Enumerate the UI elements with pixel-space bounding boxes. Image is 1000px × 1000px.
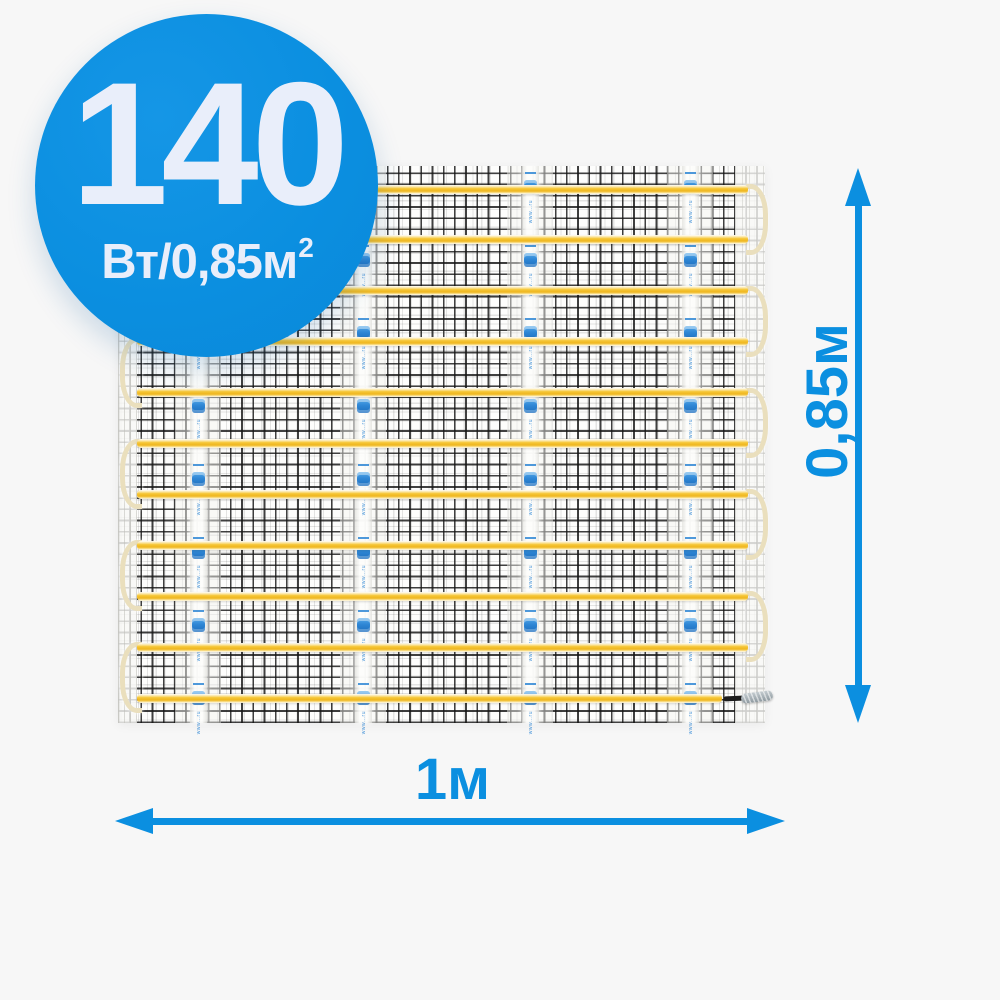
- tape-dash-mark: [358, 318, 369, 320]
- tape-dash-mark: [193, 537, 204, 539]
- tape-dash-mark: [525, 245, 536, 247]
- brand-logo-icon: [524, 399, 537, 413]
- brand-logo-icon: [524, 618, 537, 632]
- tape-url-text: www…ru: [688, 200, 694, 223]
- badge-power-unit: Вт/0,85м2: [101, 234, 312, 290]
- heating-cable-line: [137, 439, 748, 448]
- heating-cable-line: [137, 541, 748, 550]
- product-image: www…ruwww…ruwww…ruwww…ruwww…ruwww…ruwww……: [0, 0, 1000, 1000]
- brand-logo-icon: [524, 253, 537, 267]
- tape-url-text: www…ru: [528, 346, 534, 369]
- brand-logo-icon: [684, 399, 697, 413]
- tape-dash-mark: [358, 537, 369, 539]
- badge-unit-text: Вт/0,85м: [101, 235, 297, 289]
- tape-url-text: www…ru: [196, 565, 202, 588]
- arrow-shaft: [141, 818, 759, 825]
- tape-dash-mark: [685, 683, 696, 685]
- heating-cable-line: [137, 388, 748, 397]
- brand-logo-icon: [684, 618, 697, 632]
- arrow-head-right-icon: [747, 808, 785, 834]
- tape-dash-mark: [358, 464, 369, 466]
- tape-dash-mark: [193, 464, 204, 466]
- cable-u-turn-left: [120, 337, 142, 408]
- height-dimension-label: 0,85м: [799, 301, 857, 501]
- tape-url-text: www…ru: [688, 346, 694, 369]
- heating-cable-line: [137, 490, 748, 499]
- tape-url-text: www…ru: [361, 565, 367, 588]
- tape-dash-mark: [358, 683, 369, 685]
- badge-power-value: 140: [71, 62, 342, 228]
- tape-dash-mark: [525, 464, 536, 466]
- tape-dash-mark: [525, 683, 536, 685]
- tape-dash-mark: [525, 318, 536, 320]
- tape-dash-mark: [685, 318, 696, 320]
- tape-url-text: www…ru: [361, 711, 367, 734]
- tape-url-text: www…ru: [361, 346, 367, 369]
- heating-cable-line: [137, 694, 722, 703]
- tape-dash-mark: [525, 537, 536, 539]
- brand-logo-icon: [524, 472, 537, 486]
- brand-logo-icon: [357, 472, 370, 486]
- tape-url-text: www…ru: [528, 711, 534, 734]
- tape-url-text: www…ru: [528, 200, 534, 223]
- brand-logo-icon: [192, 399, 205, 413]
- brand-logo-icon: [684, 472, 697, 486]
- tape-dash-mark: [193, 683, 204, 685]
- tape-url-text: www…ru: [528, 565, 534, 588]
- tape-dash-mark: [193, 610, 204, 612]
- tape-dash-mark: [525, 610, 536, 612]
- tape-dash-mark: [685, 537, 696, 539]
- arrow-head-down-icon: [845, 685, 871, 723]
- heating-cable-line: [137, 592, 748, 601]
- tape-dash-mark: [685, 172, 696, 174]
- tape-dash-mark: [685, 610, 696, 612]
- power-badge: 140 Вт/0,85м2: [35, 14, 378, 357]
- tape-url-text: www…ru: [688, 565, 694, 588]
- brand-logo-icon: [192, 472, 205, 486]
- brand-logo-icon: [357, 618, 370, 632]
- tape-dash-mark: [685, 464, 696, 466]
- tape-dash-mark: [525, 172, 536, 174]
- tape-dash-mark: [685, 245, 696, 247]
- brand-logo-icon: [192, 618, 205, 632]
- tape-url-text: www…ru: [688, 711, 694, 734]
- brand-logo-icon: [357, 399, 370, 413]
- badge-unit-superscript: 2: [298, 232, 313, 263]
- tape-dash-mark: [358, 610, 369, 612]
- width-dimension-label: 1м: [350, 746, 555, 813]
- tape-url-text: www…ru: [196, 711, 202, 734]
- brand-logo-icon: [684, 253, 697, 267]
- heating-cable-line: [137, 643, 748, 652]
